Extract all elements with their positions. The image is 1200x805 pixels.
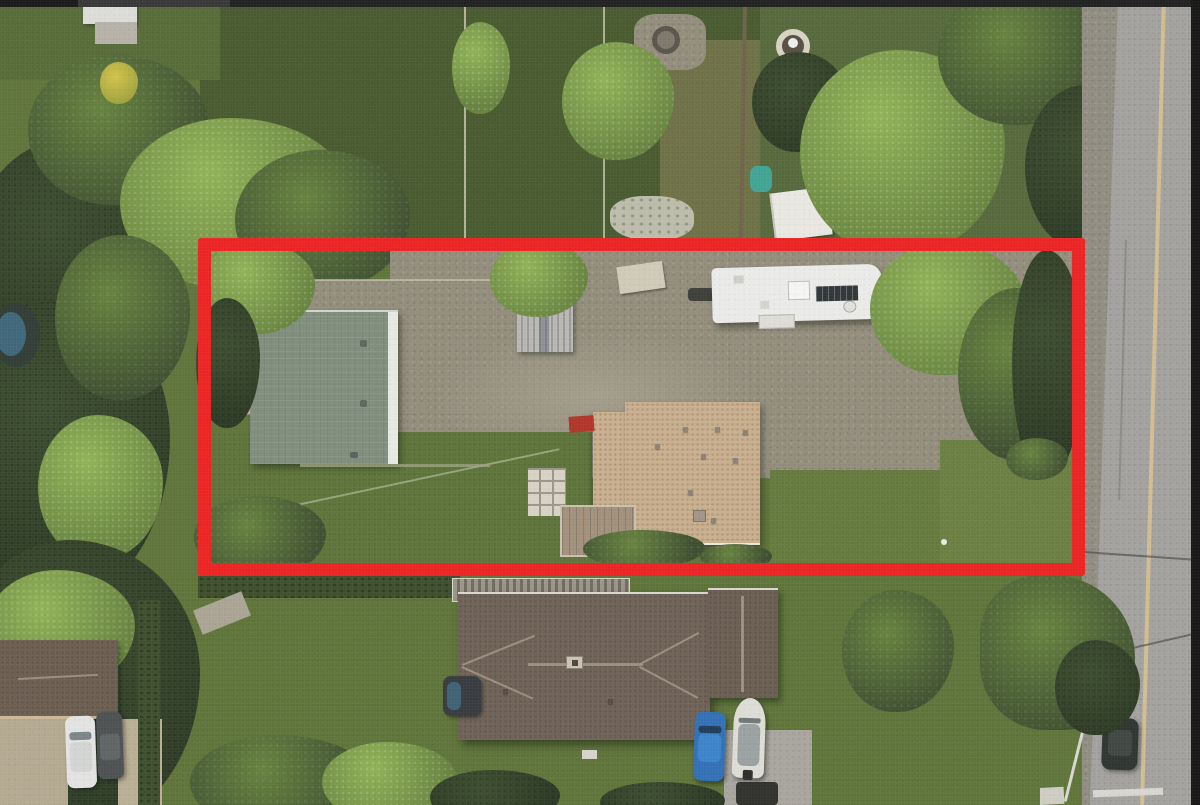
gray-car-roof — [100, 734, 121, 761]
front-step — [582, 750, 597, 759]
bottom-roof-vent-1 — [503, 689, 508, 694]
letterbox-right-strip — [1191, 0, 1200, 805]
garage-ridge — [741, 596, 744, 692]
bottom-roof-vent-2 — [608, 699, 613, 704]
aerial-photo — [0, 0, 1200, 805]
tree-left-2 — [55, 235, 190, 400]
chimney-flue — [572, 660, 578, 666]
ridge-diag-tl — [462, 635, 535, 666]
fire-pit — [652, 26, 680, 54]
teal-tarp — [750, 166, 772, 192]
ridge-diag-tr — [640, 632, 699, 665]
neighbor-ridge — [18, 674, 98, 680]
driveway-left — [0, 719, 68, 805]
boat — [732, 697, 767, 778]
chimney — [566, 656, 583, 669]
parked-car-roof — [1108, 730, 1133, 757]
hedge-left-vertical — [138, 600, 160, 805]
blue-car-windshield — [698, 726, 721, 734]
letterbox-top-strip — [0, 0, 1200, 7]
garage-roof — [708, 588, 778, 698]
ridge-center — [528, 663, 643, 666]
white-car-roof — [70, 742, 93, 773]
gray-car — [96, 712, 124, 780]
neighbor-house-top-wing — [95, 22, 137, 44]
white-car-windshield — [69, 732, 91, 741]
bottom-house-roof — [458, 592, 710, 740]
hot-tub — [443, 676, 481, 716]
boat-cockpit — [737, 724, 760, 767]
blue-car — [693, 711, 726, 781]
hot-tub-water — [447, 682, 461, 710]
blue-car-roof — [697, 734, 721, 763]
utility-trailer — [736, 782, 778, 805]
ridge-diag-br — [639, 666, 698, 699]
neighbor-house-bottom — [0, 640, 118, 719]
boat-motor — [743, 770, 753, 780]
stone-garden — [610, 196, 694, 240]
boat-windshield — [739, 718, 761, 724]
property-boundary-red-box — [198, 238, 1085, 576]
white-car — [65, 715, 97, 788]
fountain-center — [788, 38, 798, 48]
